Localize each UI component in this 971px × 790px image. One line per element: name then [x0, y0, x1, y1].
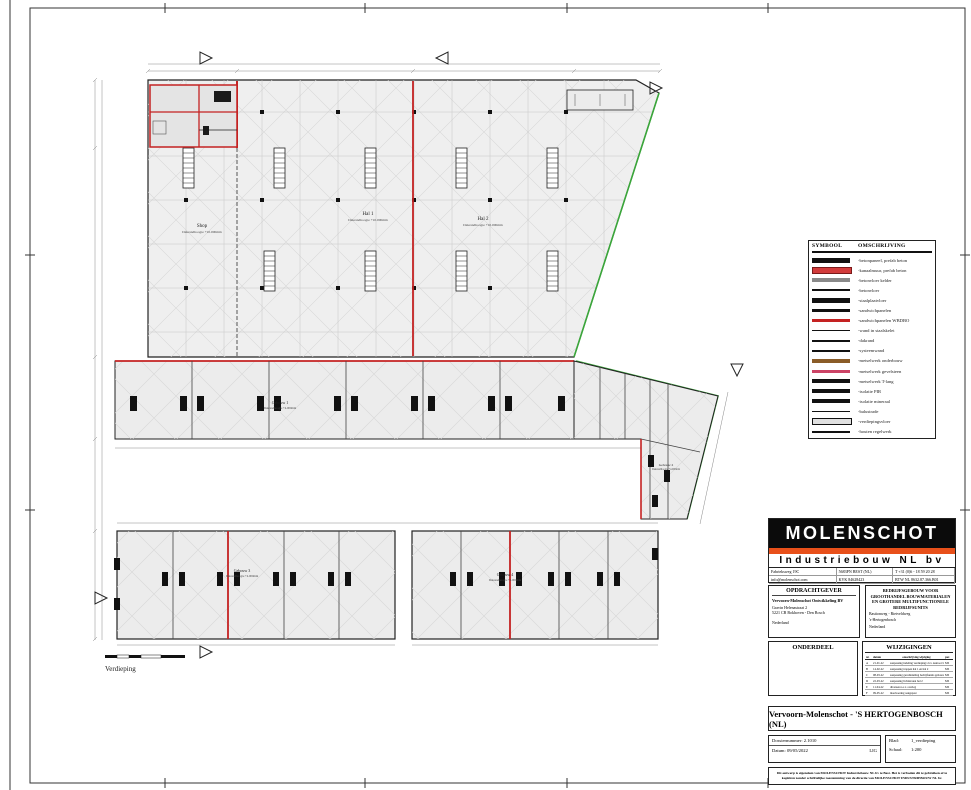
- symbol-legend: SYMBOOL OMSCHRIJVING -betonpaneel, prefa…: [808, 240, 936, 439]
- legend-symbol-bar: [812, 319, 850, 323]
- legend-symbol-bar: [812, 340, 850, 342]
- bottom-right-building: [412, 531, 658, 639]
- legend-row: -metselwerk gevelsteen: [812, 366, 932, 376]
- legend-label: -verdiepingsvloer: [858, 419, 890, 424]
- label-hal2-height: Dakrandhoogte +10.000mm: [463, 223, 503, 227]
- legend-symbol-bar: [812, 389, 850, 393]
- revision-description: maatvoering aangepast: [889, 690, 944, 695]
- scale-label: Schaal:: [889, 747, 911, 752]
- sheet-row: Blad: 1_verdieping: [886, 736, 955, 745]
- revision-nr: C: [865, 672, 872, 677]
- revisions-header: WIJZIGINGEN: [865, 644, 953, 653]
- legend-label: -systeemwand: [858, 348, 884, 353]
- legend-symbol-bar: [812, 258, 850, 263]
- legend-label: -metselwerk T-lang: [858, 379, 894, 384]
- legend-symbol-bar: [812, 330, 850, 332]
- office-block: [150, 85, 237, 147]
- logo-black-band: MOLENSCHOT: [769, 519, 955, 548]
- legend-symbol-cell: [812, 267, 858, 274]
- legend-symbol-bar: [812, 350, 850, 352]
- legend-row: -verdiepingsvloer: [812, 417, 932, 427]
- revision-date: 14-02-22: [872, 666, 889, 671]
- client-box: OPDRACHTGEVER Vervoorn-Molenschot Ontwik…: [768, 585, 860, 638]
- legend-symbol-cell: [812, 418, 858, 425]
- legend-symbol-cell: [812, 319, 858, 323]
- brand-subtitle: Industriebouw NL bv: [769, 554, 955, 568]
- label-gebouw3: Gebouw 3: [234, 568, 251, 573]
- revision-description: aanpassing indeling verdieping t.b.v. ka…: [889, 660, 944, 665]
- legend-row: -dakrand: [812, 336, 932, 346]
- dossier-row: Dossiernummer: 2.1010: [769, 736, 880, 746]
- disclaimer-text: Dit ontwerp is eigendom van MOLENSCHOT I…: [769, 771, 955, 780]
- legend-row: -isolatie PIR: [812, 386, 932, 396]
- legend-symbol-bar: [812, 370, 850, 373]
- project-title: Vervoorn-Molenschot - 'S HERTOGENBOSCH (…: [769, 709, 955, 729]
- legend-symbol-bar: [812, 379, 850, 384]
- legend-symbol-bar: [812, 399, 850, 403]
- legend-label: -sandwichpanelen: [858, 308, 891, 313]
- date-value: 09/05/2022: [787, 748, 808, 753]
- parts-list-header: ONDERDEEL: [773, 644, 853, 651]
- legend-row: -kanaalmuur, prefab beton: [812, 265, 932, 275]
- revision-nr: E: [865, 684, 872, 689]
- legend-label: -isolatie PIR: [858, 389, 881, 394]
- wedge-building: [574, 361, 718, 519]
- label-gebouw3-height: Dakrandhoogte +4.000mm: [226, 574, 259, 578]
- client-address2: 5221 CB Bokhoven - Den Bosch: [772, 610, 856, 615]
- revision-initials: MS: [944, 678, 953, 683]
- revision-initials: MS: [944, 666, 953, 671]
- dossier-number: 2.1010: [804, 738, 817, 743]
- revisions-box: WIJZIGINGEN nr. datum omschrijving wijzi…: [862, 641, 956, 696]
- date-row: Datum: 09/05/2022 LIG: [769, 746, 880, 755]
- client-country: Nederland: [772, 620, 856, 625]
- legend-row: -isolatie mineraal: [812, 396, 932, 406]
- legend-row: -wand in staalskelet: [812, 326, 932, 336]
- legend-symbol-cell: [812, 258, 858, 263]
- label-gebouw4: Gebouw 4: [497, 572, 514, 577]
- legend-row: -balustrade: [812, 406, 932, 416]
- client-name: Vervoorn-Molenschot Ontwikkeling BV: [772, 598, 856, 603]
- legend-symbol-bar: [812, 309, 850, 313]
- legend-symbol-bar: [812, 359, 850, 364]
- bottom-left-building: [114, 531, 395, 639]
- revision-nr: B: [865, 666, 872, 671]
- revision-initials: MS: [944, 660, 953, 665]
- legend-header: SYMBOOL OMSCHRIJVING: [812, 243, 932, 253]
- scale-row: Schaal: 1:200: [886, 745, 955, 754]
- brand-name: MOLENSCHOT: [786, 523, 939, 544]
- revision-date: 08-03-22: [872, 672, 889, 677]
- legend-symbol-cell: [812, 278, 858, 282]
- legend-row: -betonpaneel, prefab beton: [812, 255, 932, 265]
- revision-initials: MS: [944, 684, 953, 689]
- label-shop-height: Dakrandhoogte +10.000mm: [182, 230, 222, 234]
- legend-symbol-bar: [812, 298, 850, 303]
- revision-description: diversen n.a.v. overleg: [889, 684, 944, 689]
- legend-symbol-bar: [812, 418, 852, 425]
- label-gebouw4-height: Dakrandhoogte +4.000mm: [489, 578, 522, 582]
- legend-label: -staalplaatvloer: [858, 298, 886, 303]
- title-block: MOLENSCHOT Industriebouw NL bv Fabrieksw…: [768, 515, 956, 787]
- legend-symbol-bar: [812, 278, 850, 282]
- client-header: OPDRACHTGEVER: [772, 588, 856, 596]
- legend-row: -betonvloer kelder: [812, 275, 932, 285]
- legend-symbol-cell: [812, 340, 858, 342]
- label-gebouw1: Gebouw 1: [272, 400, 289, 405]
- drawing-sheet: Shop Dakrandhoogte +10.000mm Hal 1 Dakra…: [0, 0, 971, 790]
- revision-date: 22-03-22: [872, 678, 889, 683]
- revision-date: 11-04-22: [872, 684, 889, 689]
- revision-nr: A: [865, 660, 872, 665]
- revision-nr: F: [865, 690, 872, 695]
- legend-row: -metselwerk T-lang: [812, 376, 932, 386]
- legend-row: -systeemwand: [812, 346, 932, 356]
- project-city: 's-Hertogenbosch: [869, 618, 952, 622]
- project-title-bar: Vervoorn-Molenschot - 'S HERTOGENBOSCH (…: [768, 706, 956, 731]
- dossier-info-box: Dossiernummer: 2.1010 Datum: 09/05/2022 …: [768, 735, 881, 763]
- legend-label: -metselwerk onderbouw: [858, 358, 903, 363]
- project-street: Bastionweg - Rietveldweg: [869, 612, 952, 616]
- legend-symbol-cell: [812, 411, 858, 412]
- scale-value: 1:200: [911, 747, 921, 752]
- legend-symbol-cell: [812, 298, 858, 303]
- col-omschrijving: omschrijving wijziging: [889, 654, 944, 659]
- col-datum: datum: [872, 654, 889, 659]
- label-hal1-height: Dakrandhoogte +10.000mm: [348, 218, 388, 222]
- parts-list-box: ONDERDEEL: [768, 641, 858, 696]
- legend-symbol-cell: [812, 399, 858, 403]
- legend-symbol-bar: [812, 431, 850, 433]
- label-hal2: Hal 2: [478, 217, 489, 222]
- label-gebouw1-height: Dakrandhoogte +4.000mm: [264, 406, 297, 410]
- legend-label: -balustrade: [858, 409, 878, 414]
- label-shop: Shop: [197, 224, 208, 229]
- revision-date: 21-01-22: [872, 660, 889, 665]
- revision-description: aanpassing gevelindeling bedrijfsunits g…: [889, 672, 944, 677]
- label-gebouw2: Gebouw 2: [659, 463, 674, 467]
- legend-symbol-cell: [812, 379, 858, 384]
- strip-building: [115, 361, 574, 439]
- scale-bar: [105, 655, 185, 658]
- legend-symbol-bar: [812, 411, 850, 412]
- legend-label: -betonvloer: [858, 288, 879, 293]
- revision-initials: MS: [944, 690, 953, 695]
- revision-row: F 09-05-22 maatvoering aangepast MS: [865, 690, 953, 696]
- legend-symbol-cell: [812, 350, 858, 352]
- revision-initials: MS: [944, 672, 953, 677]
- legend-label: -betonpaneel, prefab beton: [858, 258, 907, 263]
- legend-symbol-cell: [812, 330, 858, 332]
- sheet-info-box: Blad: 1_verdieping Schaal: 1:200: [885, 735, 956, 763]
- drawing-name-label: Verdieping: [105, 665, 136, 673]
- legend-symbol-cell: [812, 389, 858, 393]
- legend-row: -houten regelwerk: [812, 427, 932, 437]
- legend-label: -houten regelwerk: [858, 429, 892, 434]
- legend-row: -metselwerk onderbouw: [812, 356, 932, 366]
- code-value: LIG: [869, 748, 877, 753]
- date-label: Datum:: [772, 748, 786, 753]
- legend-label: -wand in staalskelet: [858, 328, 894, 333]
- contact-grid: Fabrieksweg 19C 5683PN BEST (NL) T +31 (…: [769, 568, 955, 584]
- project-description-title: BEDRIJFSGEBOUW VOOR GROOTHANDEL BOUWMATE…: [869, 588, 952, 610]
- legend-row: -sandwichpanelen WBDBO: [812, 316, 932, 326]
- legend-symbol-cell: [812, 289, 858, 291]
- legend-row: -sandwichpanelen: [812, 305, 932, 315]
- legend-symbol-cell: [812, 370, 858, 373]
- legend-symbol-bar: [812, 267, 852, 274]
- legend-symbol-bar: [812, 289, 850, 291]
- label-gebouw2-height: Dakrandhoogte +4.000mm: [652, 468, 680, 471]
- legend-symbol-cell: [812, 359, 858, 364]
- disclaimer-box: Dit ontwerp is eigendom van MOLENSCHOT I…: [768, 767, 956, 785]
- revision-date: 09-05-22: [872, 690, 889, 695]
- sheet-label: Blad:: [889, 738, 911, 743]
- legend-label: -kanaalmuur, prefab beton: [858, 268, 906, 273]
- revision-description: aanpassing trappen hal 1 en hal 2: [889, 666, 944, 671]
- legend-symbol-cell: [812, 431, 858, 433]
- revision-description: aanpassing lichtstraten hal 2: [889, 678, 944, 683]
- company-logo-block: MOLENSCHOT Industriebouw NL bv Fabrieksw…: [768, 518, 956, 583]
- legend-row: -betonvloer: [812, 285, 932, 295]
- sheet-value: 1_verdieping: [911, 738, 935, 743]
- dossier-label: Dossiernummer:: [772, 738, 803, 743]
- legend-header-symbol: SYMBOOL: [812, 243, 858, 249]
- legend-label: -isolatie mineraal: [858, 399, 890, 404]
- legend-header-description: OMSCHRIJVING: [858, 243, 906, 249]
- legend-symbol-cell: [812, 309, 858, 313]
- label-hal1: Hal 1: [363, 212, 374, 217]
- legend-label: -betonvloer kelder: [858, 278, 892, 283]
- legend-label: -metselwerk gevelsteen: [858, 369, 901, 374]
- project-description-box: BEDRIJFSGEBOUW VOOR GROOTHANDEL BOUWMATE…: [865, 585, 956, 638]
- revision-nr: D: [865, 678, 872, 683]
- legend-row: -staalplaatvloer: [812, 295, 932, 305]
- col-nr: nr.: [865, 654, 872, 659]
- legend-label: -sandwichpanelen WBDBO: [858, 318, 909, 323]
- col-par: par.: [944, 654, 953, 659]
- project-country: Nederland: [869, 625, 952, 629]
- legend-label: -dakrand: [858, 338, 874, 343]
